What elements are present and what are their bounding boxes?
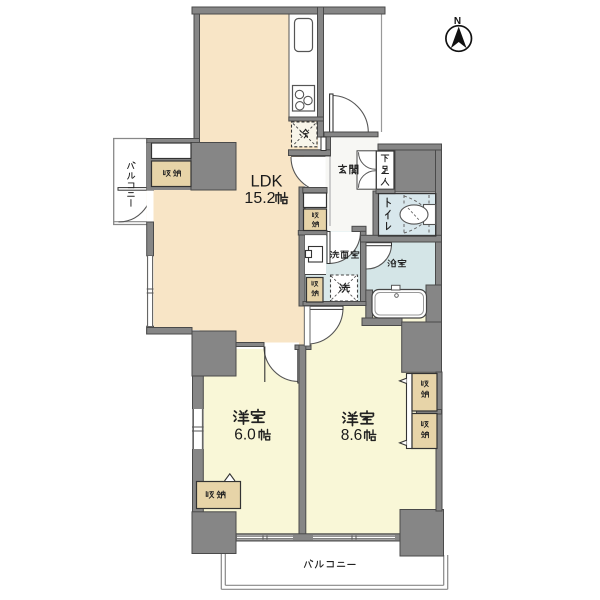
svg-text:LDK: LDK <box>250 173 282 191</box>
svg-text:N: N <box>454 16 461 27</box>
svg-text:6.0: 6.0 <box>234 427 256 444</box>
svg-text:15.2: 15.2 <box>244 190 275 207</box>
svg-text:8.6: 8.6 <box>341 427 363 444</box>
